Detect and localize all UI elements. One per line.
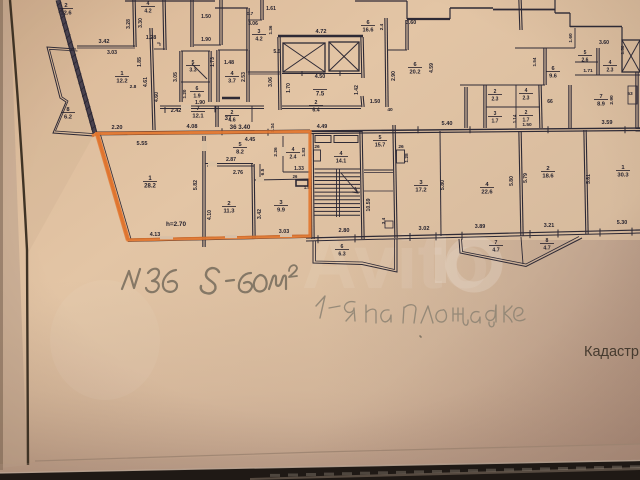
svg-text:3.05: 3.05 xyxy=(173,72,179,82)
svg-text:2.90: 2.90 xyxy=(609,95,615,105)
svg-text:4.2: 4.2 xyxy=(144,9,151,15)
svg-text:2.87: 2.87 xyxy=(226,157,236,163)
svg-text:5.80: 5.80 xyxy=(509,176,515,186)
svg-text:3.42: 3.42 xyxy=(257,209,263,219)
svg-text:4.45: 4.45 xyxy=(245,137,256,143)
svg-text:14.1: 14.1 xyxy=(336,159,347,165)
svg-text:2.3: 2.3 xyxy=(492,97,499,103)
svg-text:5.40: 5.40 xyxy=(442,121,453,127)
svg-text:h=2.70: h=2.70 xyxy=(166,221,187,228)
svg-text:40: 40 xyxy=(387,107,393,113)
svg-text:8.9: 8.9 xyxy=(597,102,605,108)
svg-text:3.02: 3.02 xyxy=(419,226,430,232)
svg-text:3.89: 3.89 xyxy=(475,224,486,230)
svg-text:1.50: 1.50 xyxy=(201,14,211,20)
svg-text:20.2: 20.2 xyxy=(410,70,421,76)
svg-text:1.90: 1.90 xyxy=(195,100,205,106)
svg-text:2.42: 2.42 xyxy=(171,108,182,114)
svg-text:5.82: 5.82 xyxy=(193,180,199,190)
svg-text:4.61: 4.61 xyxy=(143,77,149,87)
svg-text:4.50: 4.50 xyxy=(315,74,326,80)
svg-text:9.9: 9.9 xyxy=(277,208,286,214)
svg-text:4.7: 4.7 xyxy=(543,246,550,252)
svg-text:1.73: 1.73 xyxy=(210,57,216,67)
svg-text:2.4: 2.4 xyxy=(379,23,384,30)
svg-text:1.7: 1.7 xyxy=(492,119,499,125)
svg-text:6.2: 6.2 xyxy=(64,115,72,121)
svg-text:3.60: 3.60 xyxy=(406,20,417,26)
svg-text:3.42: 3.42 xyxy=(99,39,110,45)
svg-text:1.36: 1.36 xyxy=(268,25,273,34)
svg-text:1.83: 1.83 xyxy=(301,147,306,156)
svg-text:4.72: 4.72 xyxy=(316,29,327,35)
svg-text:12.2: 12.2 xyxy=(116,79,127,85)
svg-text:30.3: 30.3 xyxy=(617,173,629,179)
svg-text:1.71: 1.71 xyxy=(583,68,593,74)
svg-text:10.59: 10.59 xyxy=(366,198,372,211)
svg-text:3.03: 3.03 xyxy=(107,50,117,56)
svg-text:3.06: 3.06 xyxy=(268,77,274,87)
svg-text:2.53: 2.53 xyxy=(241,72,247,82)
svg-text:1.85: 1.85 xyxy=(137,57,143,67)
svg-text:3.28: 3.28 xyxy=(126,19,132,29)
svg-text:4.60: 4.60 xyxy=(154,92,160,102)
svg-text:4.59: 4.59 xyxy=(429,63,435,73)
svg-text:1.50: 1.50 xyxy=(370,99,381,105)
svg-text:5.5: 5.5 xyxy=(273,49,280,55)
svg-text:2.80: 2.80 xyxy=(339,228,350,234)
svg-text:6.3: 6.3 xyxy=(338,252,345,258)
svg-text:36 3.40: 36 3.40 xyxy=(230,124,251,131)
svg-text:1.48: 1.48 xyxy=(224,60,234,66)
svg-text:1.60: 1.60 xyxy=(568,33,574,43)
svg-text:66: 66 xyxy=(547,99,553,105)
svg-text:2.90: 2.90 xyxy=(391,71,397,81)
svg-text:Кадастр: Кадастр xyxy=(584,344,639,360)
svg-text:1.28: 1.28 xyxy=(146,35,157,41)
svg-text:2.26: 2.26 xyxy=(273,147,279,157)
svg-text:5.79: 5.79 xyxy=(523,173,529,183)
svg-text:4.08: 4.08 xyxy=(187,124,198,130)
svg-text:2.8: 2.8 xyxy=(130,84,137,90)
svg-text:1.42: 1.42 xyxy=(354,85,360,95)
svg-text:28.2: 28.2 xyxy=(144,184,156,190)
svg-text:3.3: 3.3 xyxy=(189,68,196,74)
svg-text:1.90: 1.90 xyxy=(201,37,211,43)
svg-text:6.5: 6.5 xyxy=(260,168,266,175)
svg-text:6.4: 6.4 xyxy=(312,108,319,114)
svg-text:26: 26 xyxy=(398,144,404,150)
svg-text:1.28: 1.28 xyxy=(404,153,410,163)
svg-text:4.7: 4.7 xyxy=(492,248,499,254)
svg-text:3.06: 3.06 xyxy=(248,21,258,27)
svg-text:2.6: 2.6 xyxy=(582,58,589,64)
svg-text:18.6: 18.6 xyxy=(542,174,554,180)
svg-text:2.3: 2.3 xyxy=(607,68,614,74)
svg-text:15.7: 15.7 xyxy=(375,143,386,149)
svg-text:3.21: 3.21 xyxy=(544,223,555,229)
svg-text:37: 37 xyxy=(225,116,232,122)
svg-text:5.55: 5.55 xyxy=(137,141,148,147)
svg-text:12.1: 12.1 xyxy=(192,114,204,120)
svg-text:3.60: 3.60 xyxy=(599,40,609,46)
svg-text:9.6: 9.6 xyxy=(549,74,557,80)
svg-text:17.2: 17.2 xyxy=(415,188,426,194)
svg-text:3.59: 3.59 xyxy=(602,120,613,126)
svg-text:1.61: 1.61 xyxy=(266,6,276,12)
svg-text:4.10: 4.10 xyxy=(207,210,213,220)
svg-text:11.3: 11.3 xyxy=(224,209,236,215)
svg-text:5.30: 5.30 xyxy=(617,220,628,226)
svg-text:2.76: 2.76 xyxy=(233,170,243,176)
svg-text:2.3: 2.3 xyxy=(523,96,530,102)
svg-text:4.2: 4.2 xyxy=(255,37,262,43)
svg-text:Avito: Avito xyxy=(302,220,489,305)
svg-text:7.5: 7.5 xyxy=(316,92,325,98)
svg-text:0.7: 0.7 xyxy=(247,11,254,16)
svg-text:2.20: 2.20 xyxy=(112,125,123,131)
svg-text:4.49: 4.49 xyxy=(317,124,328,130)
svg-text:26: 26 xyxy=(293,174,298,179)
svg-text:16.6: 16.6 xyxy=(363,28,374,34)
svg-text:4.13: 4.13 xyxy=(150,232,161,238)
svg-text:3.30: 3.30 xyxy=(138,18,144,28)
svg-text:12.6: 12.6 xyxy=(60,11,72,17)
svg-text:1.20: 1.20 xyxy=(182,89,187,98)
svg-text:22.6: 22.6 xyxy=(481,190,493,196)
svg-text:1.9: 1.9 xyxy=(193,94,200,100)
svg-text:1.14: 1.14 xyxy=(512,114,517,123)
svg-text:1.33: 1.33 xyxy=(294,166,304,172)
svg-text:26: 26 xyxy=(314,144,320,150)
svg-text:1.50: 1.50 xyxy=(522,122,532,128)
svg-text:2.4: 2.4 xyxy=(290,155,297,161)
svg-text:1.70: 1.70 xyxy=(286,83,292,93)
svg-text:8.2: 8.2 xyxy=(236,150,244,156)
svg-text:3.7: 3.7 xyxy=(228,79,236,85)
svg-text:1.54: 1.54 xyxy=(532,57,537,66)
